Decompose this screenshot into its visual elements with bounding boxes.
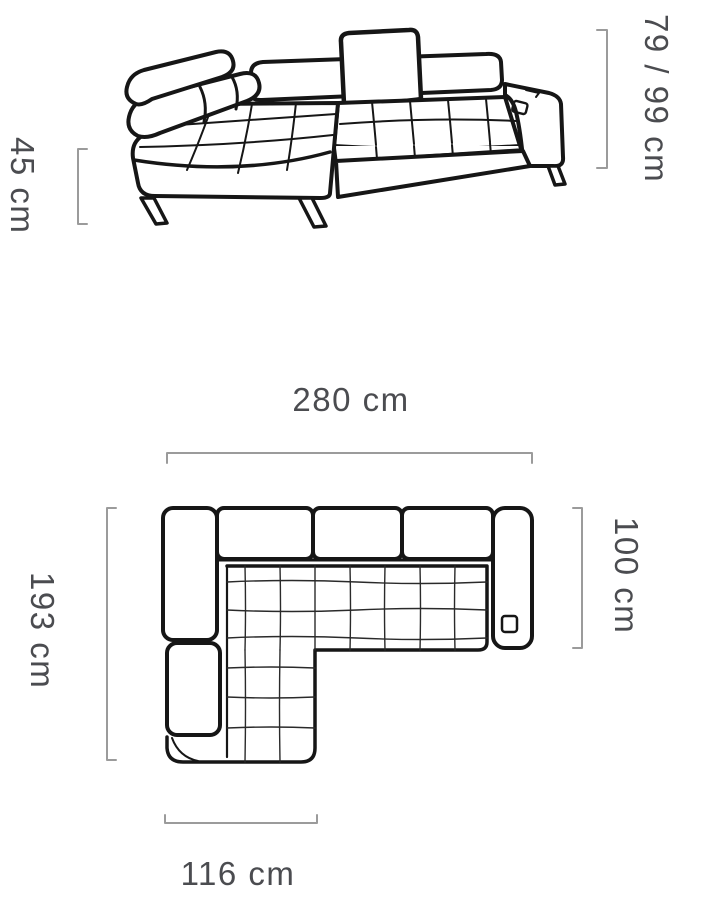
seat-height-bracket [78,149,87,224]
plan-back-cushions [217,508,493,559]
plan-view-drawing [163,508,532,762]
sofa-dimension-diagram: 45 cm 79 / 99 cm 280 cm 193 cm 100 cm 11… [0,0,702,899]
plan-chaise-bolster [167,643,220,735]
total-depth-label: 193 cm [26,572,59,689]
front-view-drawing [126,30,565,227]
front-center-leg [299,198,326,227]
plan-mattress-grid [227,566,487,762]
plan-corner-seam [172,738,198,761]
seat-height-label: 45 cm [6,137,39,234]
sofa-drawings [0,0,702,899]
plan-right-armrest [493,508,532,648]
total-width-label: 280 cm [0,383,702,416]
total-depth-bracket [107,508,116,760]
back-height-label: 79 / 99 cm [640,14,673,183]
right-leg [548,166,565,185]
chaise-width-label: 116 cm [138,857,338,890]
front-left-leg [141,198,167,224]
seat-depth-label: 100 cm [610,517,643,634]
back-height-bracket [597,30,607,168]
plan-left-armrest [163,508,217,640]
seat-depth-bracket [573,508,582,648]
chaise-width-bracket [165,815,317,823]
headrest-panel [341,30,421,104]
base-platform [336,151,530,197]
total-width-bracket [167,453,532,463]
